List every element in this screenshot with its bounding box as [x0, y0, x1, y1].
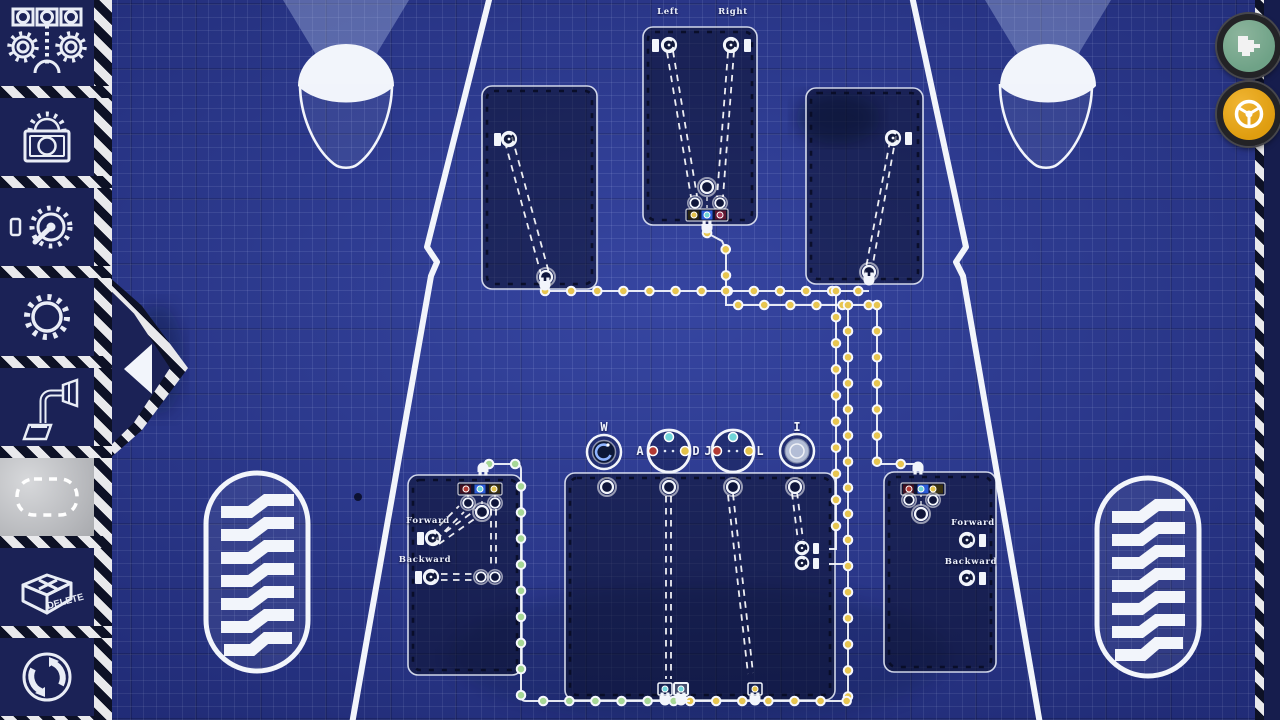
- right-forward-label: Forward: [944, 518, 1002, 528]
- left-drive-input-plug[interactable]: [478, 463, 489, 476]
- sidebar-divider: [0, 176, 112, 188]
- lock-icon: [7, 97, 87, 177]
- gear-icon: [7, 277, 87, 357]
- tool-sidebar: DELETE: [0, 0, 112, 720]
- tool-selection[interactable]: [0, 458, 94, 536]
- left-drive-node-3[interactable]: [488, 496, 502, 510]
- sidebar-divider: [0, 536, 112, 548]
- sidebar-divider: [0, 86, 112, 98]
- center-node-3[interactable]: [724, 478, 742, 496]
- key-a-label: A: [632, 444, 648, 458]
- assembly-icon: [7, 3, 87, 83]
- tool-lock[interactable]: [0, 98, 94, 176]
- tool-delete[interactable]: DELETE: [0, 548, 94, 626]
- steering-wheel-icon: [1232, 97, 1266, 131]
- reset-icon: [7, 637, 87, 717]
- left-backward-label: Backward: [396, 555, 454, 565]
- pointer-mode-button[interactable]: [1217, 14, 1280, 78]
- delete-label: DELETE: [46, 592, 85, 612]
- left-drive-controller[interactable]: [458, 483, 502, 495]
- right-drive-node-1[interactable]: [902, 493, 916, 507]
- steering-node-left[interactable]: [688, 196, 702, 210]
- wheel-right[interactable]: [1097, 478, 1199, 676]
- tool-motor-dial[interactable]: [0, 188, 94, 266]
- tool-assembly[interactable]: [0, 0, 94, 86]
- steering-right-label: Right: [711, 7, 755, 17]
- keybind-aux[interactable]: [712, 430, 754, 472]
- left-backward-node-2[interactable]: [488, 570, 502, 584]
- left-backward-motor[interactable]: [415, 570, 438, 584]
- key-j-label: J: [700, 444, 716, 458]
- selection-icon: [7, 457, 87, 537]
- key-w-label: W: [590, 420, 618, 434]
- connector-icon: [7, 367, 87, 447]
- steering-left-label: Left: [646, 7, 690, 17]
- sidebar-divider: [0, 266, 112, 278]
- left-top-panel[interactable]: [482, 86, 597, 289]
- headlight-right[interactable]: [985, 0, 1111, 168]
- tool-reset[interactable]: [0, 638, 94, 716]
- right-backward-label: Backward: [942, 557, 1000, 567]
- right-top-panel[interactable]: [806, 88, 923, 284]
- right-forward-motor[interactable]: [960, 533, 986, 547]
- sidebar-divider: [0, 626, 112, 638]
- left-forward-motor[interactable]: [417, 531, 440, 545]
- keybind-throttle[interactable]: [587, 435, 621, 469]
- steering-node-right[interactable]: [713, 196, 727, 210]
- keybind-steer[interactable]: [648, 430, 690, 472]
- right-drive-node-3[interactable]: [912, 505, 930, 523]
- steering-servo-left[interactable]: [652, 38, 676, 52]
- center-node-2[interactable]: [660, 478, 678, 496]
- steering-controller-block[interactable]: [686, 209, 728, 221]
- headlight-left[interactable]: [283, 0, 409, 168]
- collapse-arrow-icon: [124, 344, 152, 394]
- right-backward-motor[interactable]: [960, 571, 986, 585]
- left-backward-node-1[interactable]: [474, 570, 488, 584]
- wheel-left[interactable]: [206, 473, 308, 671]
- left-forward-label: Forward: [399, 516, 457, 526]
- center-node-1[interactable]: [598, 478, 616, 496]
- keybind-brake[interactable]: [780, 434, 814, 468]
- motor-dial-icon: [7, 187, 87, 267]
- pixel-cursor-icon: [1232, 29, 1266, 63]
- steering-gauge[interactable]: [698, 178, 716, 196]
- key-i-label: I: [783, 420, 811, 434]
- tool-connector[interactable]: [0, 368, 94, 446]
- blueprint-canvas: [0, 0, 1280, 720]
- sidebar-divider: [0, 356, 112, 368]
- steering-panel[interactable]: [643, 27, 757, 225]
- delete-icon: DELETE: [7, 547, 87, 627]
- tool-gear[interactable]: [0, 278, 94, 356]
- blueprint-editor: Left Right Forward Backward Forward Back…: [0, 0, 1280, 720]
- sidebar-divider: [0, 446, 112, 458]
- key-l-label: L: [752, 444, 768, 458]
- drive-mode-button[interactable]: [1217, 82, 1280, 146]
- left-top-motor[interactable]: [494, 132, 516, 146]
- right-drive-node-2[interactable]: [926, 493, 940, 507]
- center-node-4[interactable]: [786, 478, 804, 496]
- sidebar-divider: [0, 716, 112, 720]
- right-top-motor[interactable]: [886, 131, 912, 145]
